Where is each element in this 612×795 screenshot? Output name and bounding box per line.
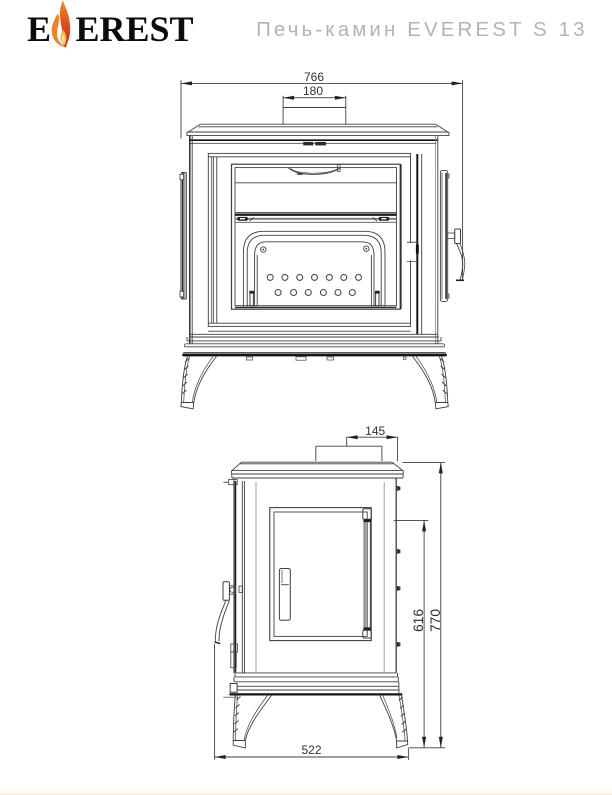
svg-text:522: 522: [301, 743, 321, 757]
svg-text:145: 145: [365, 424, 385, 438]
svg-text:Печь-камин EVEREST S 13: Печь-камин EVEREST S 13: [256, 18, 588, 41]
svg-text:616: 616: [411, 609, 426, 632]
svg-text:180: 180: [303, 84, 323, 98]
svg-text:E: E: [27, 9, 51, 49]
svg-text:EREST: EREST: [76, 9, 194, 49]
svg-text:770: 770: [428, 609, 443, 632]
svg-text:766: 766: [304, 70, 324, 84]
